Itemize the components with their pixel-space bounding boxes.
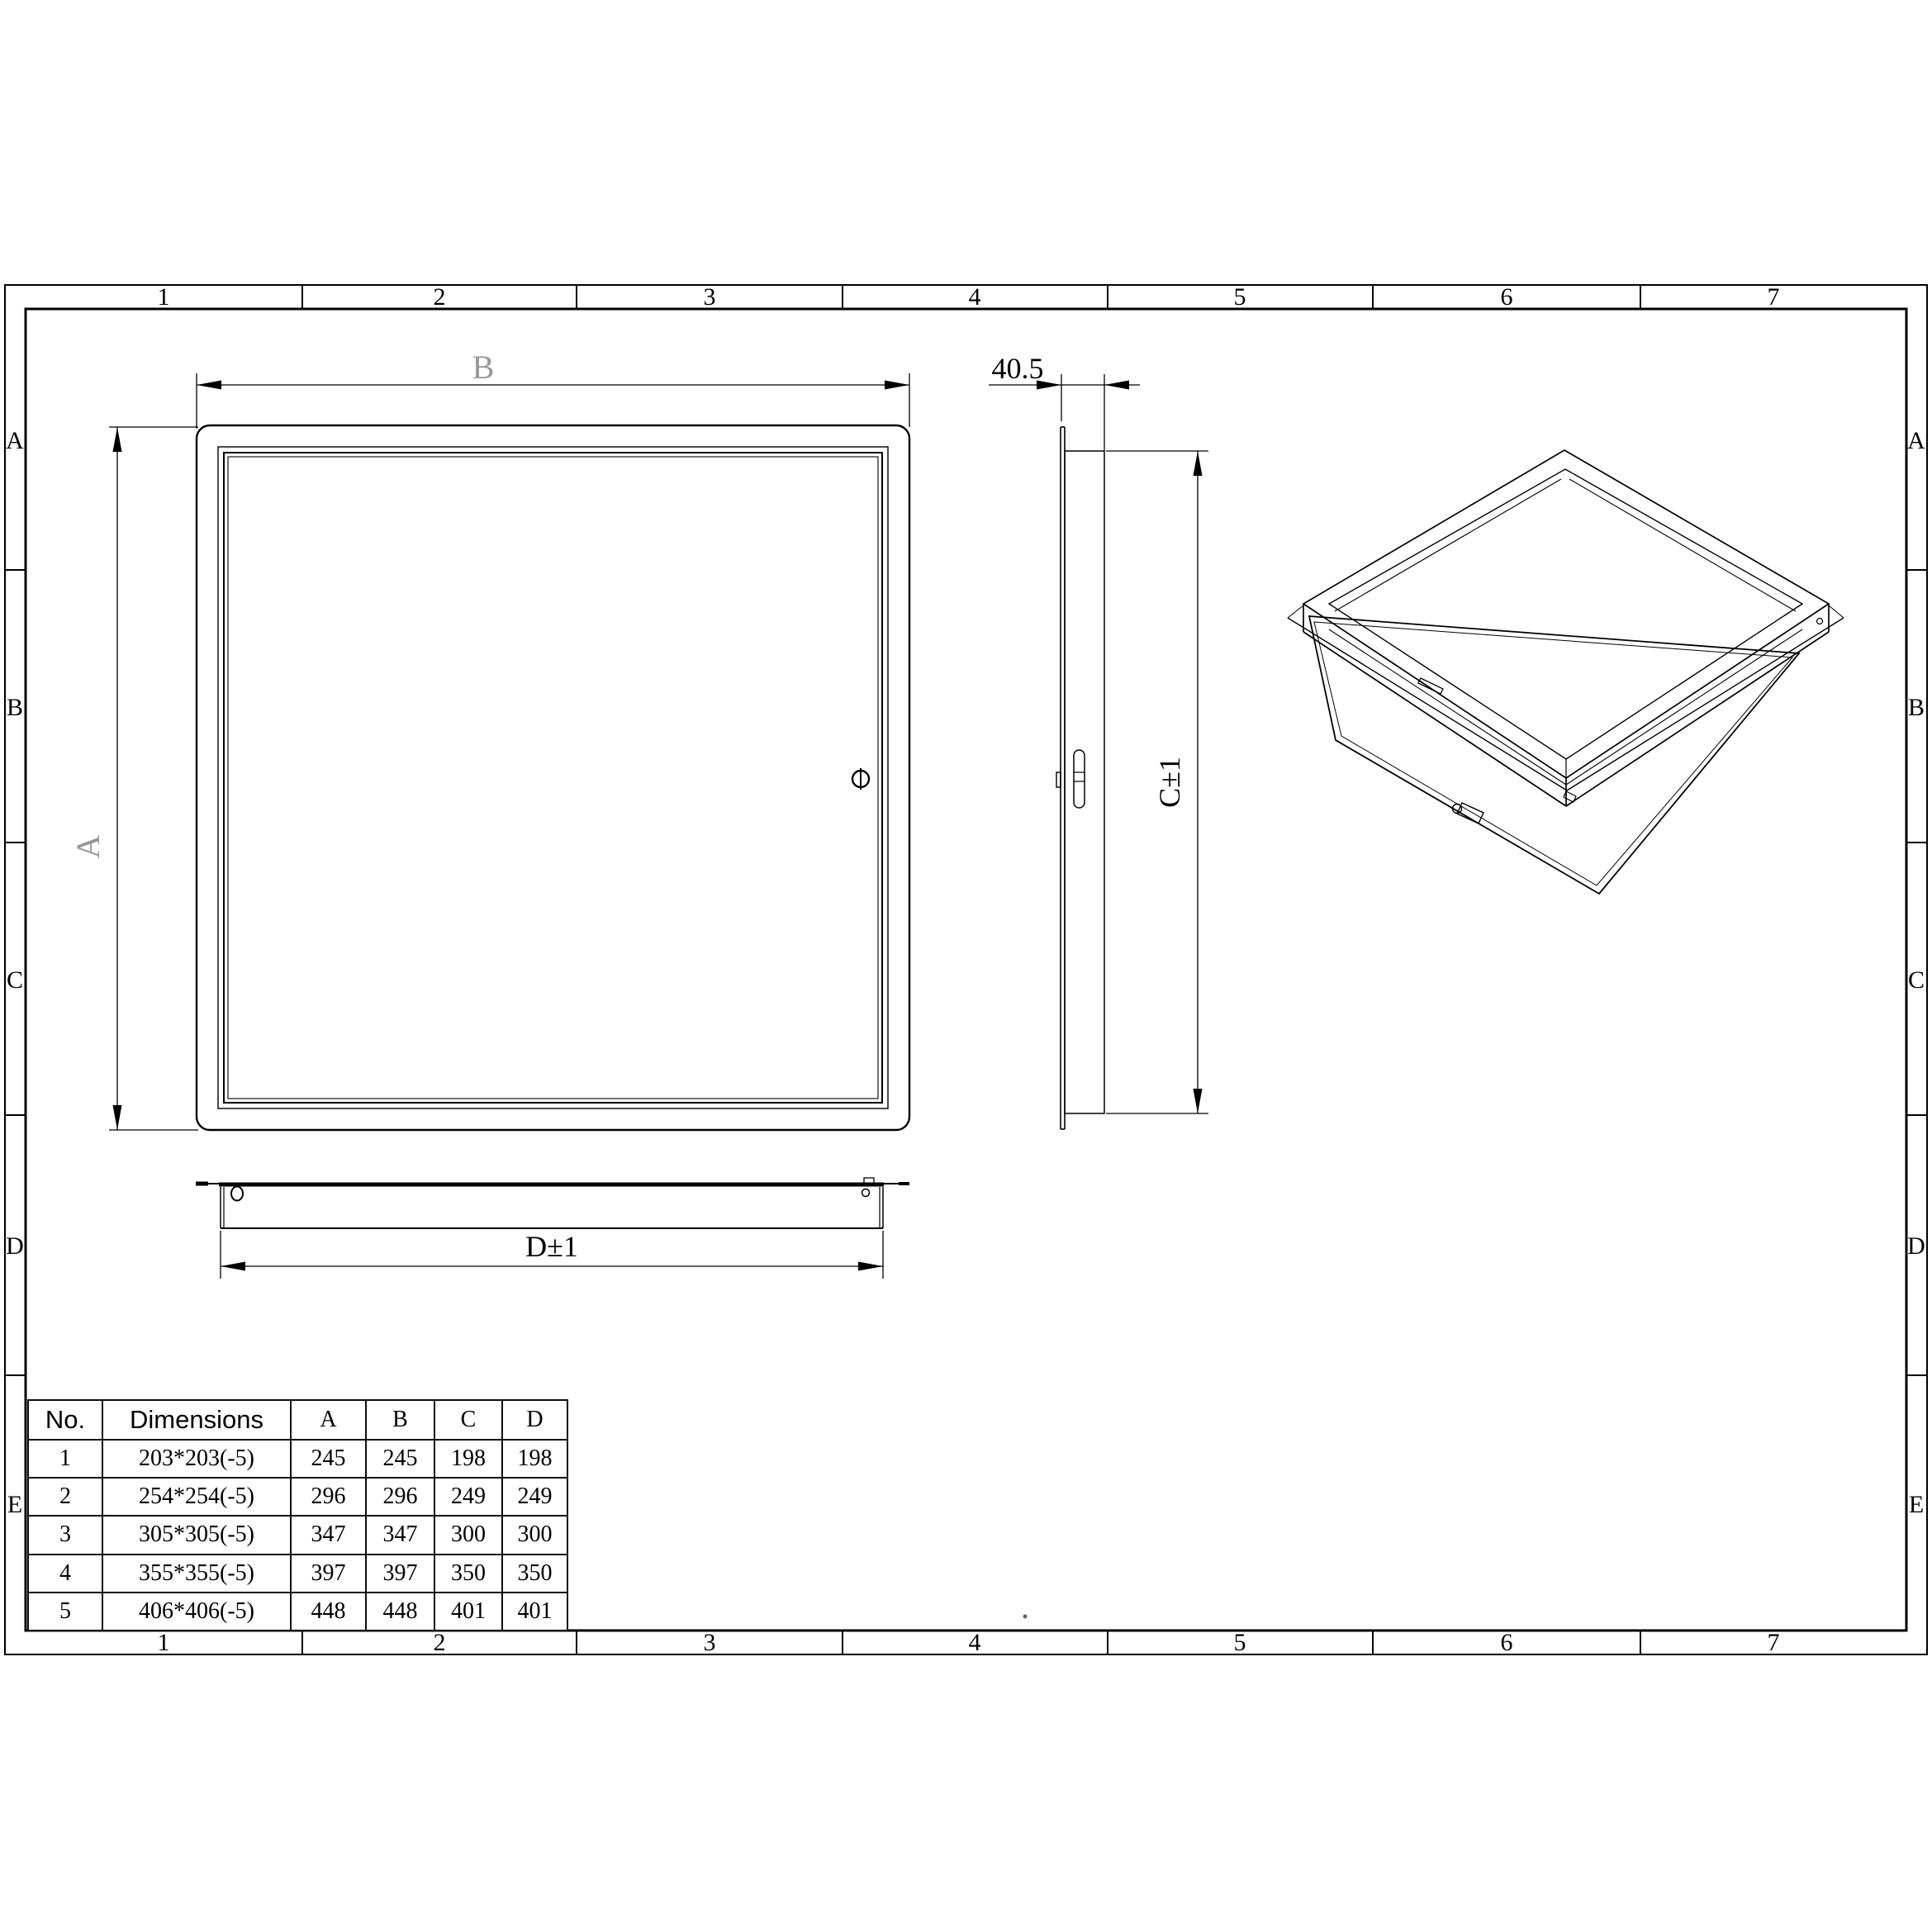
col-label: 6 — [1501, 283, 1513, 311]
row-label: B — [1908, 694, 1925, 721]
table-cell: 350 — [502, 1555, 567, 1593]
row-label: A — [1907, 427, 1925, 454]
table-row: 2254*254(-5)296296249249 — [28, 1478, 567, 1516]
screw-latch — [852, 768, 869, 790]
col-label: 3 — [704, 283, 716, 311]
dimension-A — [109, 427, 198, 1130]
mount-hole-left — [231, 1187, 243, 1201]
table-cell: 245 — [366, 1440, 434, 1478]
table-cell: 198 — [502, 1440, 567, 1478]
dim-label-D: D±1 — [525, 1230, 578, 1263]
table-cell: 305*305(-5) — [102, 1516, 291, 1554]
table-cell: 203*203(-5) — [102, 1440, 291, 1478]
table-cell: 406*406(-5) — [102, 1593, 291, 1631]
row-label: E — [1909, 1491, 1924, 1518]
row-label: B — [7, 694, 23, 721]
side-view — [1056, 427, 1104, 1129]
table-cell: 350 — [434, 1555, 502, 1593]
table-row: 4355*355(-5)397397350350 — [28, 1555, 567, 1593]
row-label: D — [6, 1232, 24, 1260]
col-header-no: No. — [28, 1400, 102, 1440]
col-header-dimensions: Dimensions — [102, 1400, 291, 1440]
mount-hole-right — [862, 1189, 870, 1197]
col-label: 6 — [1501, 1629, 1513, 1656]
col-header-c: C — [434, 1400, 502, 1440]
col-label: 4 — [969, 283, 981, 311]
iso-open-door — [1309, 616, 1799, 894]
table-cell: 3 — [28, 1516, 102, 1554]
table-cell: 5 — [28, 1593, 102, 1631]
table-cell: 249 — [434, 1478, 502, 1516]
table-cell: 1 — [28, 1440, 102, 1478]
drawing-sheet: 1 2 3 4 5 6 7 1 2 3 4 5 6 7 A B C D E A … — [0, 0, 1932, 1932]
table-cell: 296 — [291, 1478, 366, 1516]
table-cell: 448 — [291, 1593, 366, 1631]
row-label: D — [1907, 1232, 1925, 1260]
table-row: 1203*203(-5)245245198198 — [28, 1440, 567, 1478]
table-header-row: No. Dimensions A B C D — [28, 1400, 567, 1440]
dimension-B — [197, 373, 909, 429]
col-label: 2 — [434, 283, 446, 311]
table-cell: 397 — [291, 1555, 366, 1593]
row-label: C — [1908, 966, 1925, 994]
col-label: 1 — [158, 1629, 170, 1656]
iso-handle-slot — [1418, 678, 1443, 694]
table-cell: 300 — [434, 1516, 502, 1554]
col-label: 4 — [969, 1629, 981, 1656]
table-cell: 401 — [502, 1593, 567, 1631]
dim-label-C: C±1 — [1153, 757, 1186, 808]
col-label: 1 — [158, 283, 170, 311]
col-header-b: B — [366, 1400, 434, 1440]
table-cell: 347 — [291, 1516, 366, 1554]
col-header-d: D — [502, 1400, 567, 1440]
row-label: E — [7, 1491, 22, 1518]
col-label: 7 — [1768, 283, 1780, 311]
table-cell: 355*355(-5) — [102, 1555, 291, 1593]
iso-latch — [1453, 803, 1484, 824]
table-cell: 254*254(-5) — [102, 1478, 291, 1516]
dim-label-A: A — [69, 834, 107, 858]
col-label: 5 — [1234, 283, 1246, 311]
table-cell: 4 — [28, 1555, 102, 1593]
col-label: 2 — [434, 1629, 446, 1656]
table-cell: 347 — [366, 1516, 434, 1554]
table-cell: 397 — [366, 1555, 434, 1593]
bottom-view — [196, 1178, 909, 1228]
handle-slot — [1074, 750, 1085, 808]
table-cell: 249 — [502, 1478, 567, 1516]
table-row: 3305*305(-5)347347300300 — [28, 1516, 567, 1554]
table-cell: 198 — [434, 1440, 502, 1478]
col-label: 7 — [1768, 1629, 1780, 1656]
dim-label-B: B — [472, 349, 495, 386]
table-row: 5406*406(-5)448448401401 — [28, 1593, 567, 1631]
table-cell: 2 — [28, 1478, 102, 1516]
row-label: A — [6, 427, 24, 454]
table-cell: 401 — [434, 1593, 502, 1631]
front-view — [197, 425, 909, 1130]
col-label: 3 — [704, 1629, 716, 1656]
iso-screw-hole — [1817, 619, 1823, 624]
table-cell: 448 — [366, 1593, 434, 1631]
cad-drawing: 1 2 3 4 5 6 7 1 2 3 4 5 6 7 A B C D E A … — [0, 0, 1932, 1932]
table-cell: 300 — [502, 1516, 567, 1554]
dim-label-depth: 40.5 — [992, 352, 1044, 385]
table-cell: 245 — [291, 1440, 366, 1478]
print-speck — [1023, 1615, 1028, 1619]
isometric-view — [1288, 450, 1844, 894]
dimensions-table: No. Dimensions A B C D 1203*203(-5)24524… — [27, 1399, 568, 1631]
table-cell: 296 — [366, 1478, 434, 1516]
row-label: C — [7, 966, 23, 994]
col-label: 5 — [1234, 1629, 1246, 1656]
col-header-a: A — [291, 1400, 366, 1440]
